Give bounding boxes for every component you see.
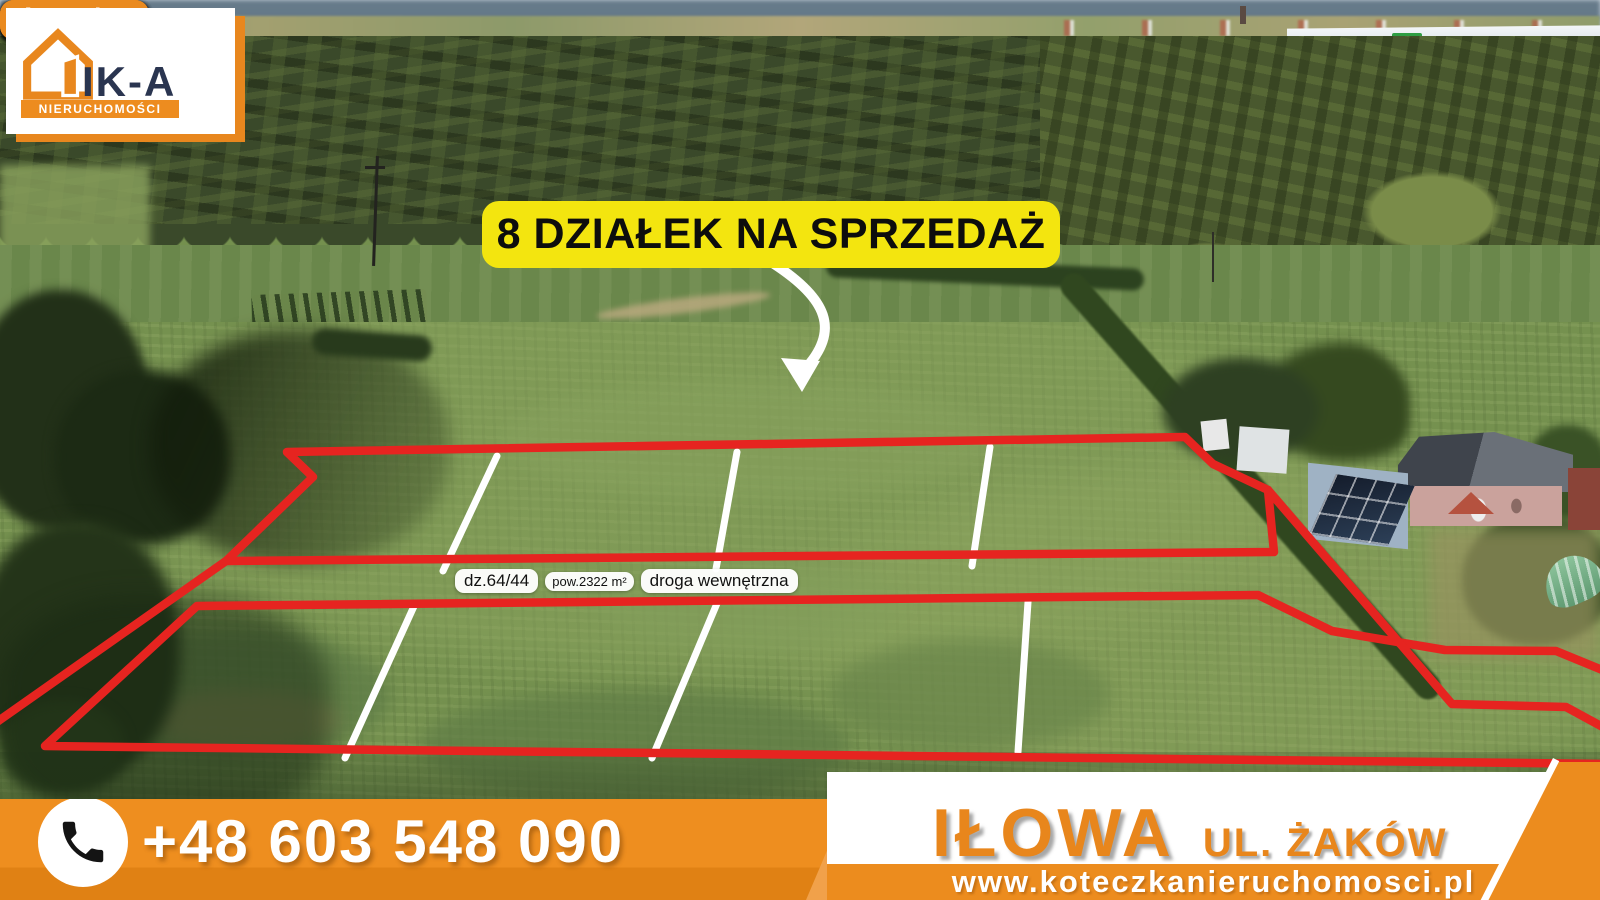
city-name: IŁOWA [932,804,1175,864]
phone-icon-circle [38,797,128,887]
logo-box: IK-A NIERUCHOMOŚCI [6,8,235,134]
plot-divider-line [652,601,718,758]
road-area: pow.2322 m² [545,572,633,591]
arrow-head-icon [781,358,820,392]
phone-banner: +48 603 548 090 [0,799,860,900]
website-url: www.koteczkanieruchomosci.pl [952,864,1475,900]
phone-handset-icon [56,815,110,869]
headline-text: 8 DZIAŁEK NA SPRZEDAŻ [497,210,1046,259]
road-labels: dz.64/44 pow.2322 m² droga wewnętrzna [455,569,798,593]
direction-arrow [774,264,825,370]
brand-subtitle: NIERUCHOMOŚCI [39,102,162,116]
street-name: UL. ŻAKÓW [1203,822,1448,864]
plot-divider-line [345,604,415,758]
plot-boundary-bottom [45,595,1600,764]
brand-name: IK-A [82,58,176,106]
plot-boundary-top [226,437,1274,561]
road-edge-line [0,561,226,724]
headline-banner: 8 DZIAŁEK NA SPRZEDAŻ [482,201,1060,268]
plot-divider-line [972,447,990,566]
plot-divider-line [716,452,737,569]
real-estate-flyer: dz.64/43 pow.853 m² dz.64/42 pow.856 m² … [0,0,1600,900]
road-name: droga wewnętrzna [641,569,798,593]
road-id: dz.64/44 [455,569,538,593]
plot-divider-line [443,456,497,571]
outer-boundary-line [1268,490,1600,732]
location-panel: IŁOWA UL. ŻAKÓW [827,772,1600,864]
phone-number: +48 603 548 090 [142,807,624,876]
brand-subtitle-bar: NIERUCHOMOŚCI [21,100,179,118]
plot-divider-line [1018,602,1028,752]
